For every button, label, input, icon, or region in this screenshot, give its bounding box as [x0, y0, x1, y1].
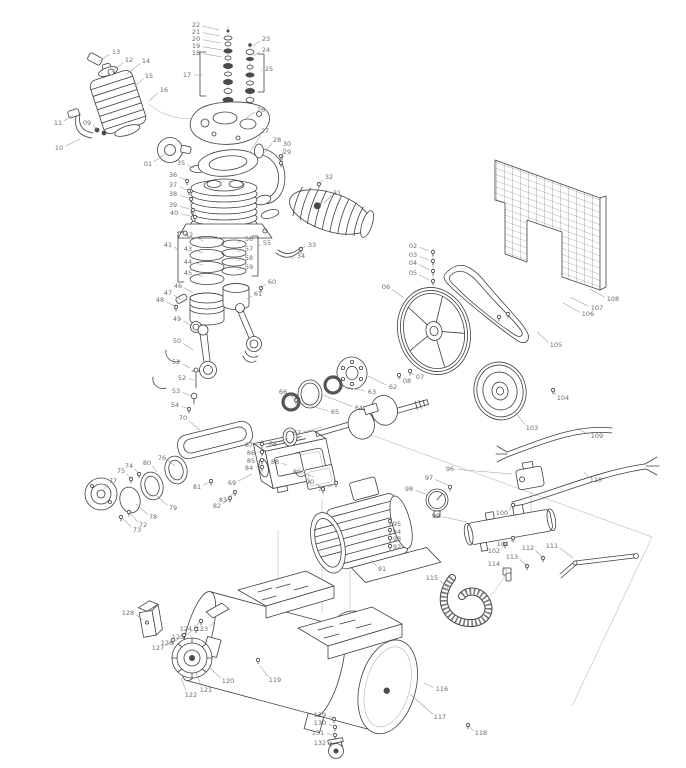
leader-line-131 — [327, 734, 334, 735]
leader-line-81 — [203, 481, 211, 485]
part-label-50: 50 — [173, 337, 181, 345]
leader-line-99 — [443, 517, 467, 522]
part-label-02: 02 — [409, 242, 417, 250]
leader-line-43 — [195, 250, 203, 253]
leader-line-55 — [257, 245, 261, 247]
part-label-65: 65 — [331, 408, 339, 416]
fastener-bolt — [431, 250, 434, 256]
part-label-100: 100 — [496, 509, 508, 517]
part-label-70: 70 — [179, 414, 187, 422]
leader-line-09 — [93, 125, 97, 129]
part-label-93: 93 — [393, 535, 401, 543]
leader-line-64 — [323, 395, 353, 406]
part-label-19: 19 — [192, 42, 200, 50]
part-label-102: 102 — [488, 547, 500, 555]
fastener-bolt — [334, 481, 337, 487]
part-label-71: 71 — [318, 485, 326, 493]
air-filter — [85, 57, 150, 141]
part-label-16: 16 — [160, 86, 168, 94]
part-label-103: 103 — [526, 424, 538, 432]
fastener-bolt — [129, 477, 132, 483]
leader-line-51 — [182, 364, 190, 368]
leader-line-05 — [419, 275, 429, 280]
part-label-11: 11 — [54, 119, 62, 127]
part-label-105: 105 — [550, 341, 562, 349]
part-label-17: 17 — [183, 71, 191, 79]
caster-wheel — [328, 738, 344, 759]
part-label-46: 46 — [174, 282, 182, 290]
part-label-09: 09 — [83, 119, 91, 127]
part-label-03: 03 — [409, 251, 417, 259]
part-label-119: 119 — [269, 676, 281, 684]
fastener-bolt — [448, 485, 451, 491]
check-valve — [514, 460, 544, 490]
part-label-91: 91 — [378, 565, 386, 573]
part-label-125: 125 — [172, 633, 184, 641]
part-label-79: 79 — [169, 504, 177, 512]
part-label-58: 58 — [245, 254, 253, 262]
part-label-127: 127 — [152, 644, 164, 652]
leader-line-34 — [291, 257, 294, 259]
part-label-29: 29 — [283, 148, 291, 156]
part-label-23: 23 — [262, 35, 270, 43]
part-label-122: 122 — [185, 691, 197, 699]
leader-line-112 — [536, 550, 543, 558]
part-label-40: 40 — [170, 209, 178, 217]
part-label-80: 80 — [143, 459, 151, 467]
leader-line-80 — [152, 466, 157, 472]
part-label-110: 110 — [590, 476, 602, 484]
part-label-55: 55 — [263, 239, 271, 247]
leader-line-38 — [180, 195, 191, 199]
part-label-114: 114 — [488, 560, 500, 568]
part-label-37: 37 — [169, 181, 177, 189]
leader-line-21 — [203, 33, 220, 36]
part-label-63: 63 — [368, 388, 376, 396]
part-label-116: 116 — [436, 685, 448, 693]
part-label-66: 66 — [279, 388, 287, 396]
part-label-73: 73 — [133, 526, 141, 534]
fastener-bolt — [551, 388, 554, 394]
leader-line-118 — [468, 725, 473, 731]
part-label-35: 35 — [177, 159, 185, 167]
part-label-60: 60 — [268, 278, 276, 286]
part-label-22: 22 — [192, 21, 200, 29]
part-label-14: 14 — [142, 57, 150, 65]
part-label-76: 76 — [158, 454, 166, 462]
part-label-01: 01 — [144, 160, 152, 168]
leader-line-113 — [520, 559, 527, 566]
part-label-84: 84 — [245, 464, 253, 472]
leader-line-110 — [584, 472, 588, 478]
part-label-49: 49 — [173, 315, 181, 323]
part-label-41: 41 — [164, 241, 172, 249]
part-label-48: 48 — [156, 296, 164, 304]
part-label-31: 31 — [333, 189, 341, 197]
part-label-34: 34 — [297, 252, 305, 260]
leader-line-20 — [203, 40, 221, 43]
part-label-57: 57 — [245, 245, 253, 253]
part-label-128: 128 — [122, 609, 134, 617]
part-label-56: 56 — [245, 235, 253, 243]
fastener-bolt — [431, 279, 434, 285]
leader-line-14 — [127, 64, 140, 74]
leader-line-15 — [134, 79, 143, 87]
part-label-104: 104 — [557, 394, 569, 402]
part-label-52: 52 — [178, 374, 186, 382]
part-label-121: 121 — [200, 686, 212, 694]
part-label-69: 69 — [228, 479, 236, 487]
part-label-26: 26 — [257, 106, 265, 114]
part-label-25: 25 — [265, 65, 273, 73]
part-label-27: 27 — [261, 127, 269, 135]
valve-stack-left — [200, 30, 234, 104]
leader-line-32 — [319, 180, 323, 184]
part-label-97: 97 — [425, 474, 433, 482]
leader-line-36 — [179, 177, 187, 181]
leader-line-37 — [179, 187, 189, 191]
leader-line-116 — [424, 683, 433, 688]
part-label-74: 74 — [125, 462, 133, 470]
leader-line-44 — [195, 263, 203, 265]
part-label-47: 47 — [164, 289, 172, 297]
part-label-83: 83 — [219, 496, 227, 504]
leader-line-53 — [183, 392, 191, 396]
part-label-45: 45 — [184, 269, 192, 277]
leader-line-03 — [420, 256, 429, 260]
part-label-07: 07 — [416, 373, 424, 381]
leader-line-16 — [149, 93, 158, 101]
part-label-131: 131 — [312, 729, 324, 737]
leader-line-117 — [410, 694, 433, 714]
part-label-87: 87 — [245, 441, 253, 449]
leader-line-22 — [203, 26, 219, 30]
part-label-95: 95 — [393, 520, 401, 528]
part-label-53: 53 — [172, 387, 180, 395]
leader-line-02 — [420, 247, 429, 251]
belt-guard-grille — [495, 160, 606, 290]
part-label-08: 08 — [403, 377, 411, 385]
fastener-bolt — [497, 315, 500, 321]
leader-line-98 — [416, 490, 428, 495]
leader-line-04 — [419, 265, 429, 270]
leader-line-59 — [237, 268, 242, 270]
fastener-bolt — [187, 407, 190, 413]
part-label-86: 86 — [247, 449, 255, 457]
fastener-bolt — [209, 479, 212, 485]
part-label-96: 96 — [446, 465, 454, 473]
power-cables — [496, 427, 659, 507]
leader-line-50 — [183, 343, 193, 350]
leader-line-18 — [203, 54, 222, 57]
leader-line-45 — [195, 274, 203, 277]
part-label-06: 06 — [382, 283, 390, 291]
leader-line-100 — [509, 505, 512, 510]
leader-line-97 — [435, 480, 450, 486]
part-label-44: 44 — [184, 258, 192, 266]
exploded-parts-diagram: 0102030405060708091011121314151617181920… — [0, 0, 686, 768]
part-label-132: 132 — [314, 739, 326, 747]
part-label-33: 33 — [308, 241, 316, 249]
part-label-64: 64 — [355, 404, 363, 412]
fastener-bolt — [279, 161, 282, 167]
outlet-manifold — [461, 499, 558, 553]
leader-line-52 — [189, 379, 194, 380]
part-label-90: 90 — [306, 478, 314, 486]
part-label-115: 115 — [426, 574, 438, 582]
diagram-canvas: 0102030405060708091011121314151617181920… — [0, 0, 686, 768]
part-label-42: 42 — [185, 231, 193, 239]
part-label-62: 62 — [389, 383, 397, 391]
leader-line-79 — [157, 496, 167, 505]
leader-line-58 — [237, 259, 242, 261]
part-label-111: 111 — [546, 542, 558, 550]
part-label-61: 61 — [254, 290, 262, 298]
part-label-12: 12 — [125, 56, 133, 64]
leader-line-25 — [261, 70, 262, 71]
part-label-10: 10 — [55, 144, 63, 152]
pressure-switch — [137, 599, 163, 637]
leader-line-103 — [514, 411, 525, 425]
part-label-54: 54 — [171, 401, 179, 409]
part-label-130: 130 — [314, 719, 326, 727]
part-label-05: 05 — [409, 269, 417, 277]
muffler — [284, 181, 378, 244]
part-label-67: 67 — [293, 429, 301, 437]
part-label-88: 88 — [271, 458, 279, 466]
leader-line-57 — [237, 250, 242, 252]
part-label-20: 20 — [192, 35, 200, 43]
part-label-117: 117 — [434, 713, 446, 721]
part-label-21: 21 — [192, 28, 200, 36]
part-label-77: 77 — [109, 477, 117, 485]
leader-line-10 — [65, 139, 80, 146]
part-label-36: 36 — [169, 171, 177, 179]
leader-line-96 — [457, 469, 512, 474]
part-label-120: 120 — [222, 677, 234, 685]
part-label-32: 32 — [325, 173, 333, 181]
part-label-04: 04 — [409, 259, 417, 267]
leader-line-46 — [184, 288, 193, 293]
part-label-123: 123 — [196, 625, 208, 633]
fastener-bolt — [333, 725, 336, 731]
leader-line-23 — [253, 41, 260, 46]
part-label-78: 78 — [149, 513, 157, 521]
leader-line-41 — [174, 247, 178, 250]
leader-line-48 — [166, 302, 176, 307]
part-label-51: 51 — [172, 358, 180, 366]
part-label-85: 85 — [247, 457, 255, 465]
leader-line-70 — [189, 421, 200, 430]
part-label-112: 112 — [522, 544, 534, 552]
part-label-38: 38 — [169, 190, 177, 198]
leader-line-74 — [134, 469, 139, 474]
leader-line-106 — [563, 303, 580, 312]
flex-hose — [444, 574, 506, 623]
leader-line-73 — [122, 518, 132, 527]
part-label-81: 81 — [193, 483, 201, 491]
leader-line-83 — [229, 492, 235, 498]
part-label-24: 24 — [262, 46, 270, 54]
flywheel — [388, 280, 479, 383]
part-label-13: 13 — [112, 48, 120, 56]
part-label-92: 92 — [393, 543, 401, 551]
part-label-89: 89 — [293, 468, 301, 476]
fastener-bolt — [333, 733, 336, 739]
part-label-98: 98 — [405, 485, 413, 493]
part-label-113: 113 — [506, 553, 518, 561]
leader-line-107 — [570, 297, 589, 306]
part-label-68: 68 — [269, 440, 277, 448]
fastener-bolt — [511, 536, 514, 542]
leader-line-06 — [392, 289, 404, 298]
leader-line-19 — [203, 47, 222, 50]
leader-line-130 — [329, 724, 334, 727]
part-label-94: 94 — [393, 528, 401, 536]
fastener-bolt — [506, 312, 509, 318]
fastener-bolt — [137, 472, 140, 478]
part-label-109: 109 — [591, 432, 603, 440]
part-label-43: 43 — [184, 245, 192, 253]
leader-line-69 — [238, 474, 252, 481]
part-label-118: 118 — [475, 729, 487, 737]
part-label-108: 108 — [607, 295, 619, 303]
leader-line-07 — [410, 372, 414, 375]
part-label-107: 107 — [591, 304, 603, 312]
outlet-pipe — [503, 554, 639, 582]
part-label-39: 39 — [169, 201, 177, 209]
leader-line-72 — [130, 513, 138, 522]
part-label-30: 30 — [283, 140, 291, 148]
part-label-59: 59 — [245, 263, 253, 271]
part-label-28: 28 — [273, 136, 281, 144]
part-label-18: 18 — [192, 49, 200, 57]
fastener-bolt — [431, 259, 434, 265]
part-label-99: 99 — [432, 512, 440, 520]
motor-pulley — [469, 357, 532, 425]
part-label-75: 75 — [117, 467, 125, 475]
oil-dipstick-and-plug — [191, 368, 200, 404]
leader-line-108 — [590, 289, 605, 297]
leader-line-62 — [368, 376, 387, 385]
fastener-bolt — [431, 269, 434, 275]
part-label-15: 15 — [145, 72, 153, 80]
leader-line-111 — [560, 548, 573, 558]
leader-line-105 — [537, 332, 548, 342]
part-label-129: 129 — [314, 711, 326, 719]
leader-line-75 — [126, 474, 131, 479]
